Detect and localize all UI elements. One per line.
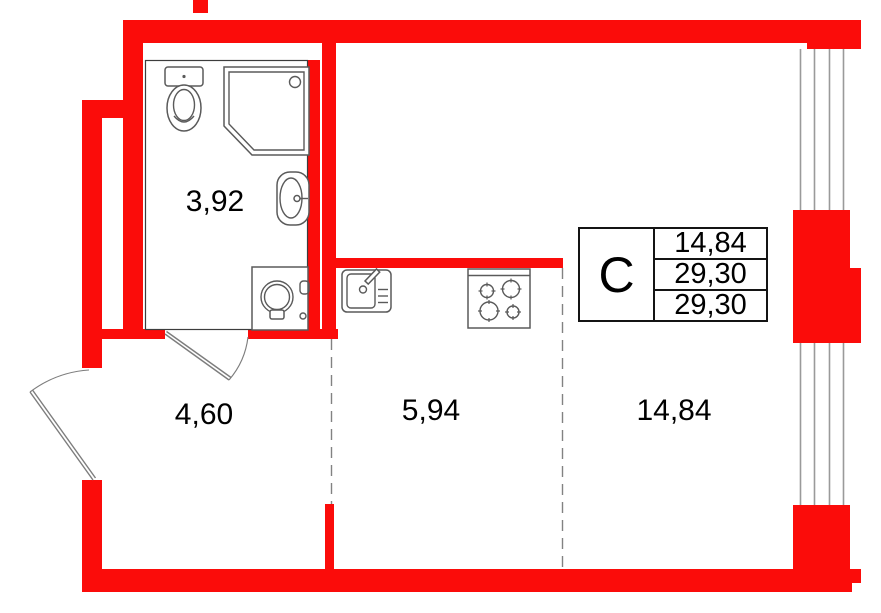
room-label-kitchen: 5,94 <box>402 396 460 426</box>
apartment-type-label: C <box>580 229 655 320</box>
stove-icon <box>468 269 530 328</box>
area-full: 29,30 <box>655 291 766 320</box>
wash-basin-icon <box>277 172 309 225</box>
window-upper-icon <box>801 49 844 210</box>
toilet-icon <box>165 67 203 131</box>
area-total: 29,30 <box>655 260 766 291</box>
area-living: 14,84 <box>655 229 766 260</box>
apartment-areas: 14,84 29,30 29,30 <box>655 229 766 320</box>
room-label-living-room: 14,84 <box>636 396 711 426</box>
window-lower-icon <box>801 343 844 505</box>
apartment-info-table: C 14,84 29,30 29,30 <box>578 227 768 322</box>
entrance-door-icon <box>30 370 96 480</box>
room-label-hallway: 4,60 <box>175 400 233 430</box>
room-label-bathroom: 3,92 <box>186 187 244 217</box>
floor-plan: 3,92 4,60 5,94 14,84 C 14,84 29,30 29,30 <box>0 0 881 613</box>
kitchen-sink-icon <box>342 269 391 312</box>
shower-icon <box>224 67 309 155</box>
washing-machine-icon <box>252 267 309 330</box>
bathroom-door-icon <box>165 332 248 381</box>
